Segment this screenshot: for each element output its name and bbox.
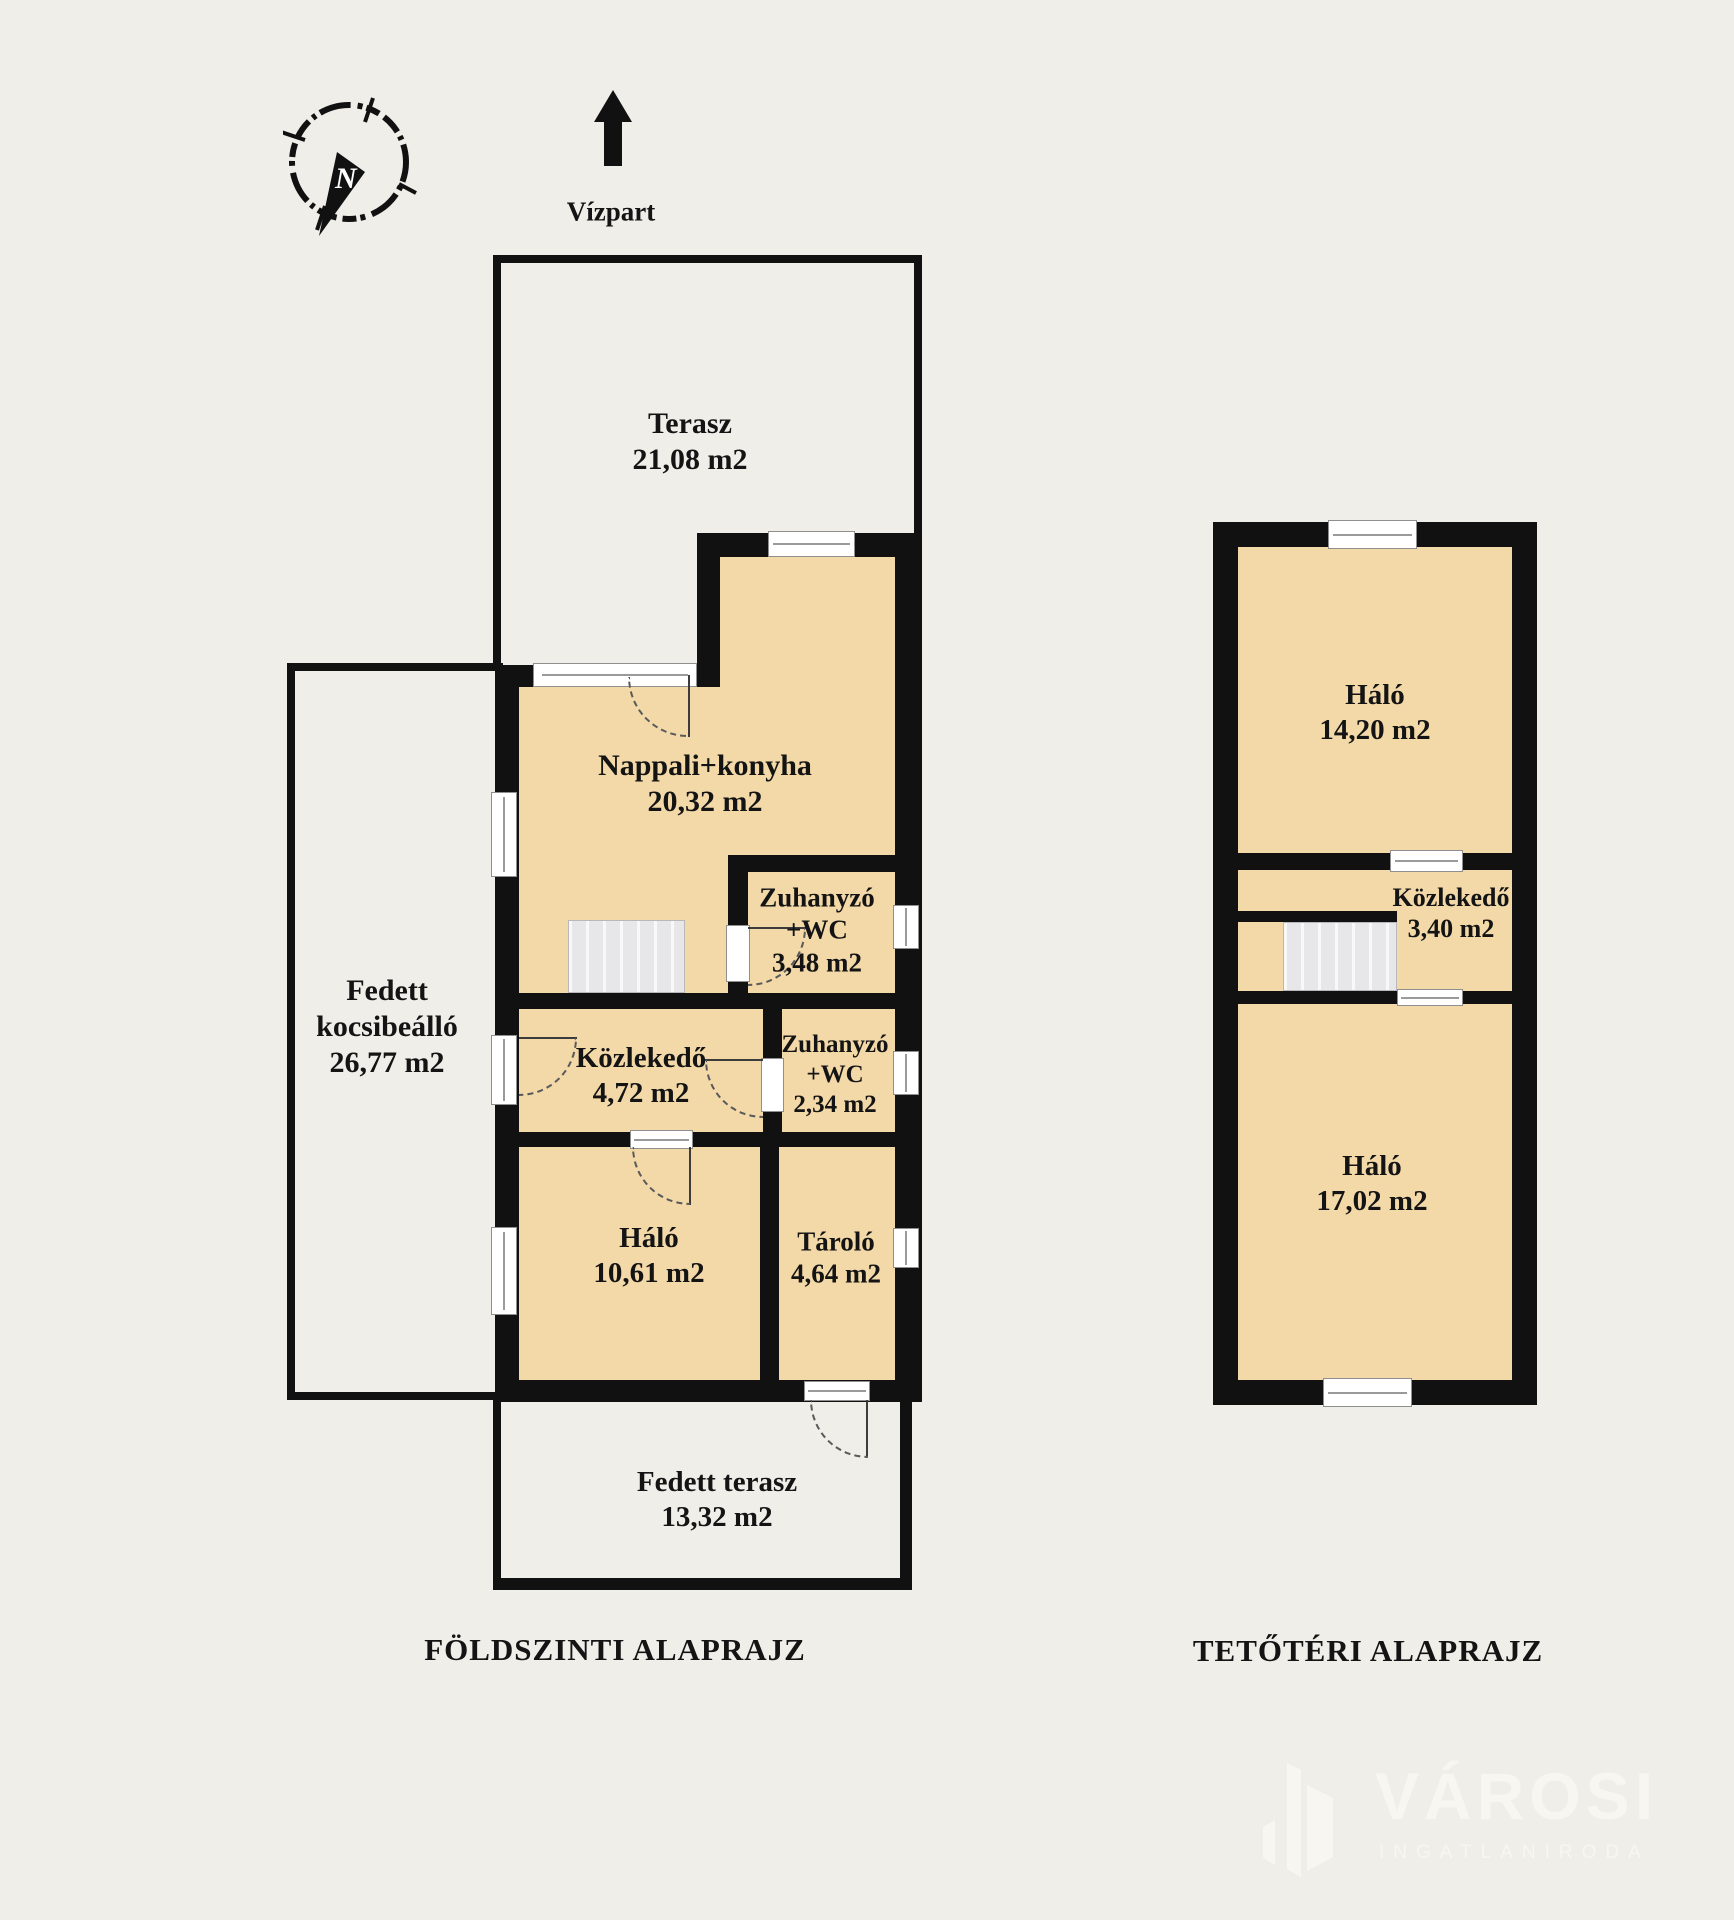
terrace-outline-top (493, 255, 922, 263)
room-area: 17,02 m2 (1316, 1184, 1427, 1219)
room-label-attic-halo-2: Háló 17,02 m2 (1316, 1149, 1427, 1219)
window-icon (893, 905, 919, 949)
room-label-tarolo: Tároló 4,64 m2 (766, 1226, 906, 1291)
window-icon (491, 792, 517, 877)
window-icon (491, 1035, 517, 1105)
room-area: 20,32 m2 (598, 784, 812, 820)
room-name: Közlekedő (576, 1041, 707, 1076)
vizpart-arrow-shaft (604, 120, 622, 166)
room-area: 21,08 m2 (633, 442, 748, 478)
door-swing-arc (810, 1400, 868, 1458)
vizpart-arrow-icon (594, 90, 632, 122)
room-label-halo: Háló 10,61 m2 (593, 1221, 704, 1291)
wall (517, 1132, 895, 1147)
room-area: 3,40 m2 (1393, 913, 1510, 944)
terrace-outline-left (493, 255, 501, 667)
window-icon (1323, 1378, 1412, 1407)
room-area: 10,61 m2 (593, 1256, 704, 1291)
room-area: 3,48 m2 (742, 946, 892, 978)
window-icon (768, 531, 855, 557)
covered-terrace-outline-right (900, 1400, 912, 1590)
room-area: 2,34 m2 (765, 1090, 905, 1120)
wall (1213, 522, 1238, 1405)
covered-terrace-outline-left (493, 1400, 501, 1590)
buildings-icon (1263, 1761, 1353, 1881)
wall (1238, 991, 1512, 1004)
agency-name: VÁROSI (1375, 1763, 1658, 1829)
room-area: 14,20 m2 (1319, 713, 1430, 748)
room-label-zuhanyzo-2: Zuhanyzó +WC 2,34 m2 (765, 1030, 905, 1120)
wall (1238, 853, 1512, 870)
room-name: Terasz (633, 406, 748, 442)
room-name: Zuhanyzó +WC (742, 881, 892, 946)
door-opening-icon (1397, 989, 1463, 1006)
room-name: Nappali+konyha (598, 748, 812, 784)
room-label-zuhanyzo-1: Zuhanyzó +WC 3,48 m2 (742, 881, 892, 978)
room-label-terasz: Terasz 21,08 m2 (633, 406, 748, 478)
room-label-attic-halo-1: Háló 14,20 m2 (1319, 678, 1430, 748)
room-name: Közlekedő (1393, 882, 1510, 913)
room-area: 4,64 m2 (766, 1258, 906, 1290)
room-name: Tároló (766, 1226, 906, 1258)
wall (728, 855, 895, 872)
agency-tagline: INGATLANIRODA (1379, 1843, 1650, 1862)
carport-outline-top (287, 663, 503, 671)
window-icon (491, 1227, 517, 1315)
terrace-outline-right (914, 255, 922, 535)
floorplan-canvas: N Vízpart (0, 0, 1734, 1920)
door-opening-icon (1390, 850, 1463, 872)
room-name: Háló (1319, 678, 1430, 713)
room-name: Háló (1316, 1149, 1427, 1184)
vizpart-label: Vízpart (567, 197, 655, 228)
compass-north-letter: N (334, 162, 358, 195)
door-opening-icon (804, 1381, 870, 1401)
wall (1238, 911, 1397, 922)
room-label-kocsibeallo: Fedett kocsibeálló 26,77 m2 (282, 973, 492, 1081)
door-leaf (688, 675, 690, 737)
covered-terrace-outline-bottom (493, 1578, 912, 1590)
agency-logo: VÁROSI INGATLANIRODA (1255, 1755, 1695, 1890)
stairs-icon (568, 920, 685, 993)
wall (517, 993, 895, 1009)
room-area: 4,72 m2 (576, 1076, 707, 1111)
room-name: Zuhanyzó +WC (765, 1030, 905, 1090)
room-area: 26,77 m2 (282, 1045, 492, 1081)
room-area: 13,32 m2 (637, 1500, 797, 1535)
stairs-icon (1283, 922, 1397, 991)
room-label-nappali: Nappali+konyha 20,32 m2 (598, 748, 812, 820)
room-name: Háló (593, 1221, 704, 1256)
room-label-kozlekedo: Közlekedő 4,72 m2 (576, 1041, 707, 1111)
room-label-fedett-terasz: Fedett terasz 13,32 m2 (637, 1465, 797, 1535)
room-label-attic-kozlekedo: Közlekedő 3,40 m2 (1393, 882, 1510, 944)
compass-icon: N (283, 96, 433, 246)
wall (1512, 522, 1537, 1405)
ground-floor-title: FÖLDSZINTI ALAPRAJZ (424, 1632, 806, 1668)
attic-title: TETŐTÉRI ALAPRAJZ (1193, 1633, 1543, 1669)
room-name: Fedett kocsibeálló (282, 973, 492, 1045)
carport-outline-bottom (287, 1392, 503, 1400)
window-icon (1328, 520, 1417, 549)
room-name: Fedett terasz (637, 1465, 797, 1500)
